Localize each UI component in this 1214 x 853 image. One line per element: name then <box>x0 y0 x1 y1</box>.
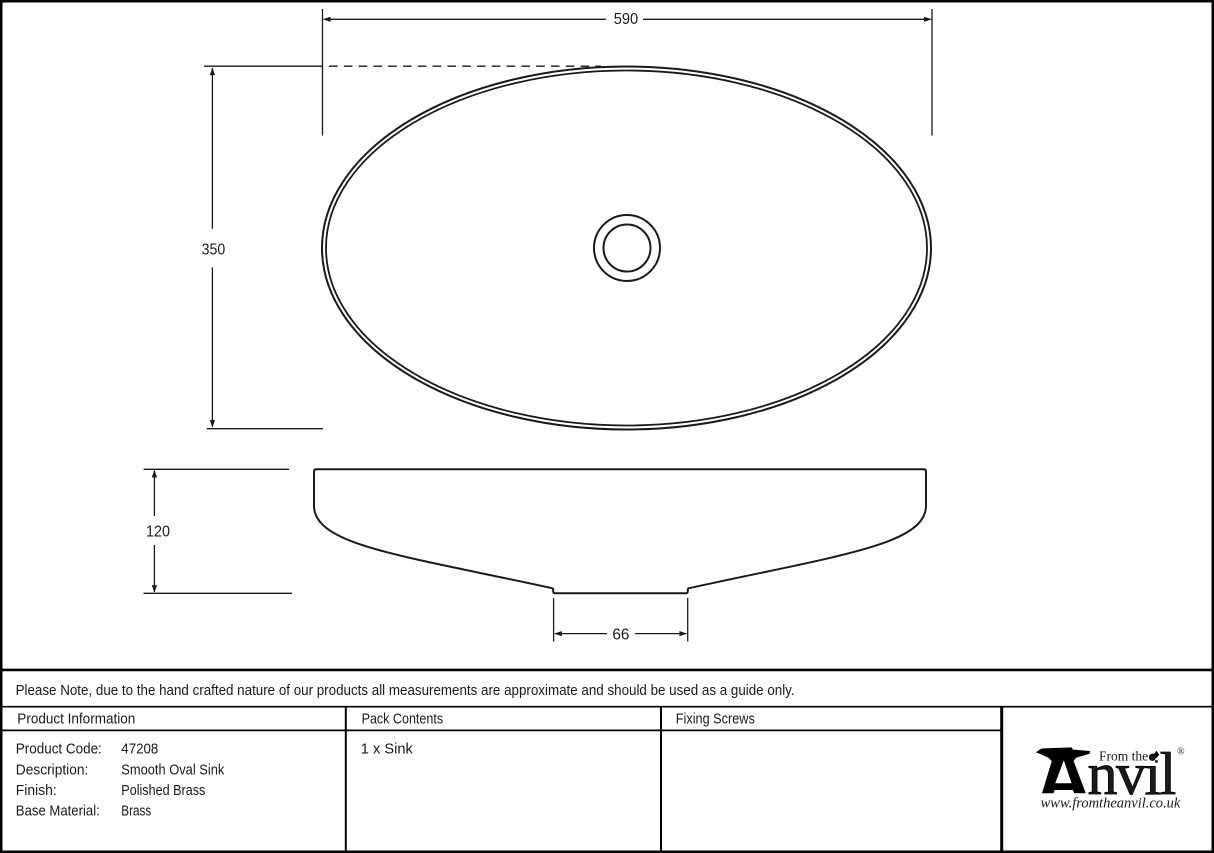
svg-text:47208: 47208 <box>121 742 158 758</box>
svg-text:Please Note, due to the hand c: Please Note, due to the hand crafted nat… <box>16 682 795 699</box>
svg-text:Product Code:: Product Code: <box>16 742 102 758</box>
svg-text:®: ® <box>1177 747 1185 758</box>
svg-text:Brass: Brass <box>121 803 151 819</box>
svg-text:120: 120 <box>146 524 170 541</box>
svg-text:350: 350 <box>202 242 226 259</box>
svg-text:Base Material:: Base Material: <box>16 803 100 819</box>
svg-text:Pack Contents: Pack Contents <box>362 710 444 727</box>
svg-text:Polished Brass: Polished Brass <box>121 783 205 799</box>
svg-text:Fixing Screws: Fixing Screws <box>676 710 755 727</box>
svg-text:www.fromtheanvil.co.uk: www.fromtheanvil.co.uk <box>1041 796 1181 812</box>
svg-text:Finish:: Finish: <box>16 783 57 799</box>
svg-text:Smooth Oval Sink: Smooth Oval Sink <box>121 762 225 778</box>
svg-text:Description:: Description: <box>16 762 89 778</box>
svg-text:From the: From the <box>1099 749 1148 764</box>
svg-text:Product Information: Product Information <box>17 710 135 727</box>
svg-text:590: 590 <box>614 11 638 28</box>
svg-text:66: 66 <box>612 626 629 643</box>
svg-text:1 x Sink: 1 x Sink <box>361 742 414 758</box>
